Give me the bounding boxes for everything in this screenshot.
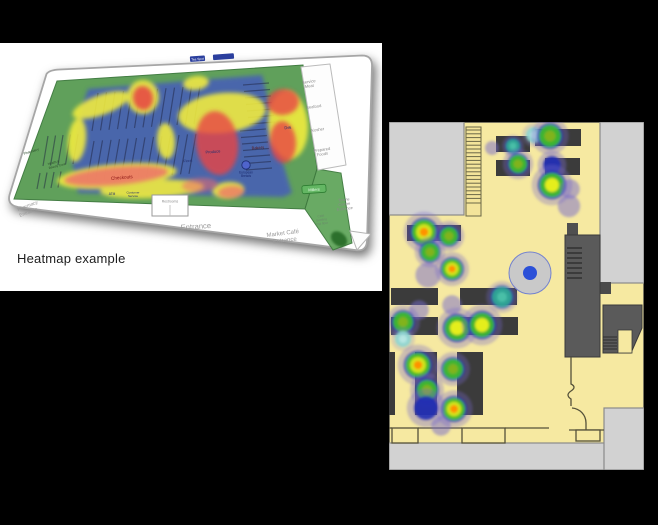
elevator-block (565, 223, 600, 357)
heat-blob-green (503, 149, 534, 180)
heat-blob-purple (558, 195, 580, 217)
gray-zone-top-right (600, 122, 644, 283)
european-breads-icon (242, 161, 250, 169)
desk (389, 352, 395, 415)
heat-blob-purple (485, 141, 499, 155)
label-european-breads-2: Breads (241, 174, 252, 178)
stairs-strip (466, 127, 481, 216)
heatmap-example-panel: Tea Spot Checkouts Produce Floral Bakery… (0, 43, 382, 291)
heat-blob-warm (462, 305, 503, 346)
heat-blob-hot (435, 252, 469, 286)
label-atm: ATM (109, 192, 116, 196)
caption: Heatmap example (17, 251, 126, 266)
svg-text:Millers: Millers (308, 187, 320, 193)
label-customer-service-2: Service (128, 194, 138, 198)
label-deli: Deli (284, 125, 291, 131)
slide-canvas: Tea Spot Checkouts Produce Floral Bakery… (0, 0, 658, 525)
restrooms-room: Restrooms (152, 195, 188, 216)
gray-zone-top-left (389, 122, 464, 215)
millers-badge: Millers (302, 184, 326, 194)
label-restrooms: Restrooms (162, 200, 179, 204)
bakery-pill (213, 53, 234, 60)
label-floral: Floral (183, 159, 193, 164)
gray-zone-step (600, 282, 611, 294)
venue-floorplan-image (389, 122, 644, 470)
gray-zone-bottom-right (604, 408, 644, 470)
column-blue-dot (523, 266, 537, 280)
heat-blob-purple (431, 416, 451, 436)
round-column (509, 252, 551, 294)
